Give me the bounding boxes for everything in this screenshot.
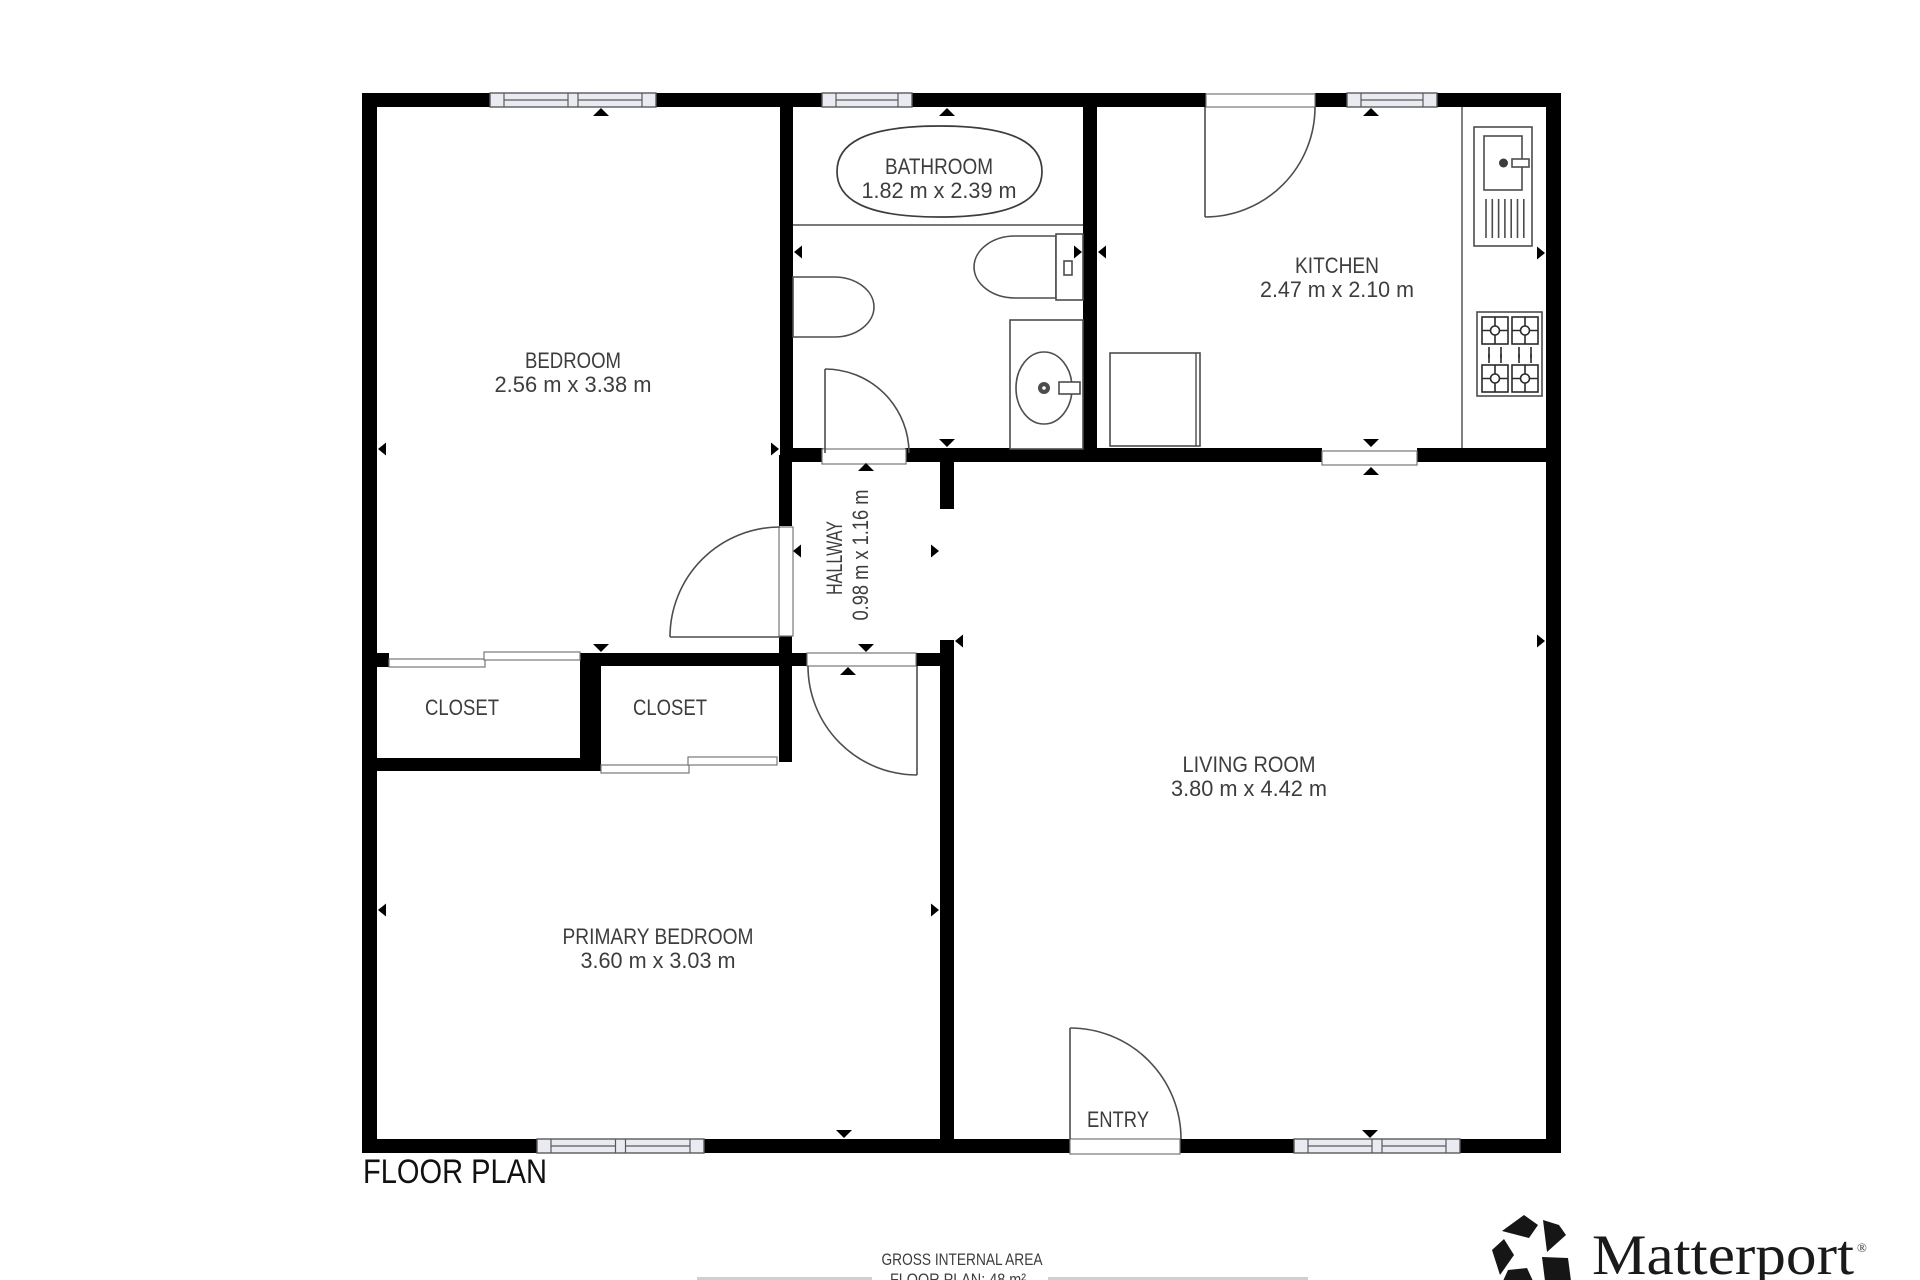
svg-text:BATHROOM: BATHROOM xyxy=(885,154,993,179)
svg-text:Matterport: Matterport xyxy=(1592,1224,1854,1280)
svg-text:FLOOR PLAN: 48 m²: FLOOR PLAN: 48 m² xyxy=(890,1270,1026,1280)
svg-text:KITCHEN: KITCHEN xyxy=(1295,253,1379,278)
svg-text:LIVING ROOM: LIVING ROOM xyxy=(1183,752,1316,777)
svg-text:2.47 m x 2.10 m: 2.47 m x 2.10 m xyxy=(1260,277,1414,302)
svg-text:®: ® xyxy=(1857,1240,1867,1255)
svg-text:ENTRY: ENTRY xyxy=(1087,1107,1149,1132)
svg-text:3.60 m x 3.03 m: 3.60 m x 3.03 m xyxy=(581,948,736,973)
svg-text:1.82 m x 2.39 m: 1.82 m x 2.39 m xyxy=(862,178,1017,203)
svg-text:FLOOR PLAN: FLOOR PLAN xyxy=(363,1153,547,1191)
svg-text:0.98 m x 1.16 m: 0.98 m x 1.16 m xyxy=(848,490,873,621)
svg-text:HALLWAY: HALLWAY xyxy=(822,521,847,595)
svg-text:2.56 m x 3.38 m: 2.56 m x 3.38 m xyxy=(495,372,652,397)
svg-text:CLOSET: CLOSET xyxy=(425,695,499,720)
svg-text:GROSS INTERNAL AREA: GROSS INTERNAL AREA xyxy=(882,1250,1044,1269)
svg-text:3.80 m x 4.42 m: 3.80 m x 4.42 m xyxy=(1171,776,1327,801)
svg-text:PRIMARY BEDROOM: PRIMARY BEDROOM xyxy=(563,924,754,949)
svg-text:BEDROOM: BEDROOM xyxy=(525,348,621,373)
svg-text:CLOSET: CLOSET xyxy=(633,695,707,720)
